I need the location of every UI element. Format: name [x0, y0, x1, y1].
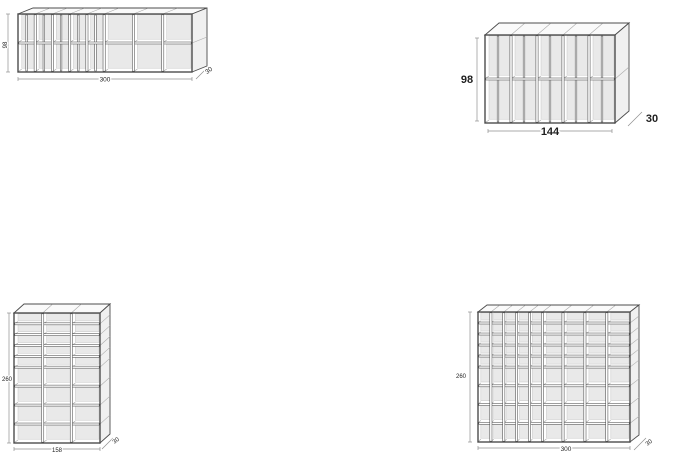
figure-shelf-wide-low: 9830030 [3, 8, 214, 84]
dim-height-label-shelf-tall-narrow: 260 [2, 377, 13, 383]
dim-width-label-shelf-tall-narrow: 158 [52, 448, 63, 454]
dim-depth-label-shelf-tall-wide: 30 [645, 438, 654, 447]
furniture-diagrams-canvas: 983003098144302601583026030030 [0, 0, 679, 462]
dim-depth-label-shelf-small: 30 [646, 113, 658, 125]
dim-depth-label-shelf-tall-narrow: 30 [112, 436, 121, 445]
dim-height-label-shelf-small: 98 [461, 74, 473, 86]
figure-shelf-tall-narrow: 26015830 [2, 304, 121, 454]
dim-width-label-shelf-wide-low: 300 [100, 77, 111, 84]
dim-width-label-shelf-small: 144 [541, 126, 560, 138]
dim-height-label-shelf-tall-wide: 260 [456, 374, 467, 380]
figure-shelf-tall-wide: 26030030 [456, 305, 654, 453]
diagram-page: 983003098144302601583026030030 [0, 0, 679, 462]
dim-depth-label-shelf-wide-low: 30 [204, 66, 214, 76]
dim-height-label-shelf-wide-low: 98 [3, 41, 9, 48]
figure-shelf-small: 9814430 [461, 23, 658, 138]
dim-width-label-shelf-tall-wide: 300 [561, 446, 572, 453]
